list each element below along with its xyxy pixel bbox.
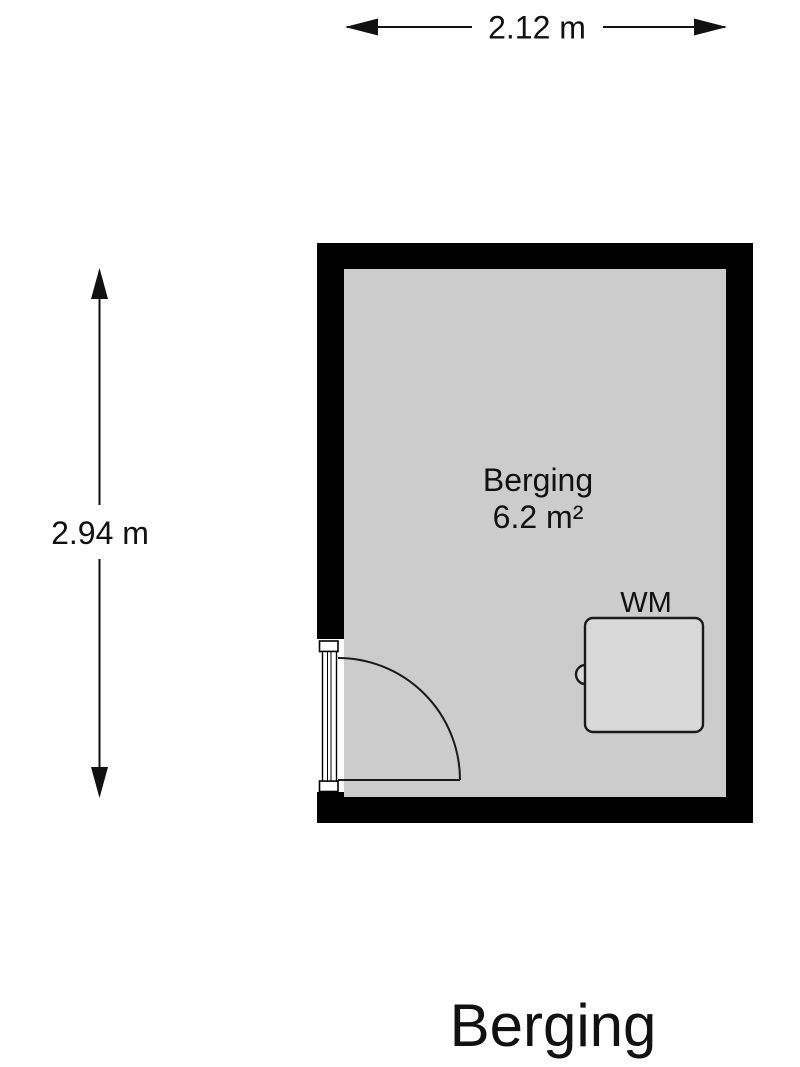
washing-machine-label: WM — [620, 587, 672, 619]
width-dimension: 2.12 m — [345, 10, 727, 46]
door-jamb-top — [320, 641, 339, 652]
door-jamb-bottom — [320, 781, 339, 792]
door-frame — [323, 652, 337, 782]
room-area-label: 6.2 m² — [493, 499, 584, 535]
washing-machine-body — [585, 618, 703, 732]
room-name-label: Berging — [483, 462, 593, 498]
height-dimension: 2.94 m — [51, 268, 149, 798]
arrow-right-icon — [694, 19, 727, 36]
height-dimension-label: 2.94 m — [51, 515, 149, 551]
width-dimension-label: 2.12 m — [488, 10, 586, 46]
floorplan-canvas: 2.12 m 2.94 m — [0, 0, 800, 1067]
room-berging: WM Berging 6.2 m² — [317, 243, 753, 823]
arrow-down-icon — [91, 767, 108, 798]
floorplan-svg: 2.12 m 2.94 m — [0, 0, 800, 1067]
arrow-up-icon — [91, 268, 108, 299]
arrow-left-icon — [345, 19, 378, 36]
plan-title: Berging — [450, 992, 657, 1059]
